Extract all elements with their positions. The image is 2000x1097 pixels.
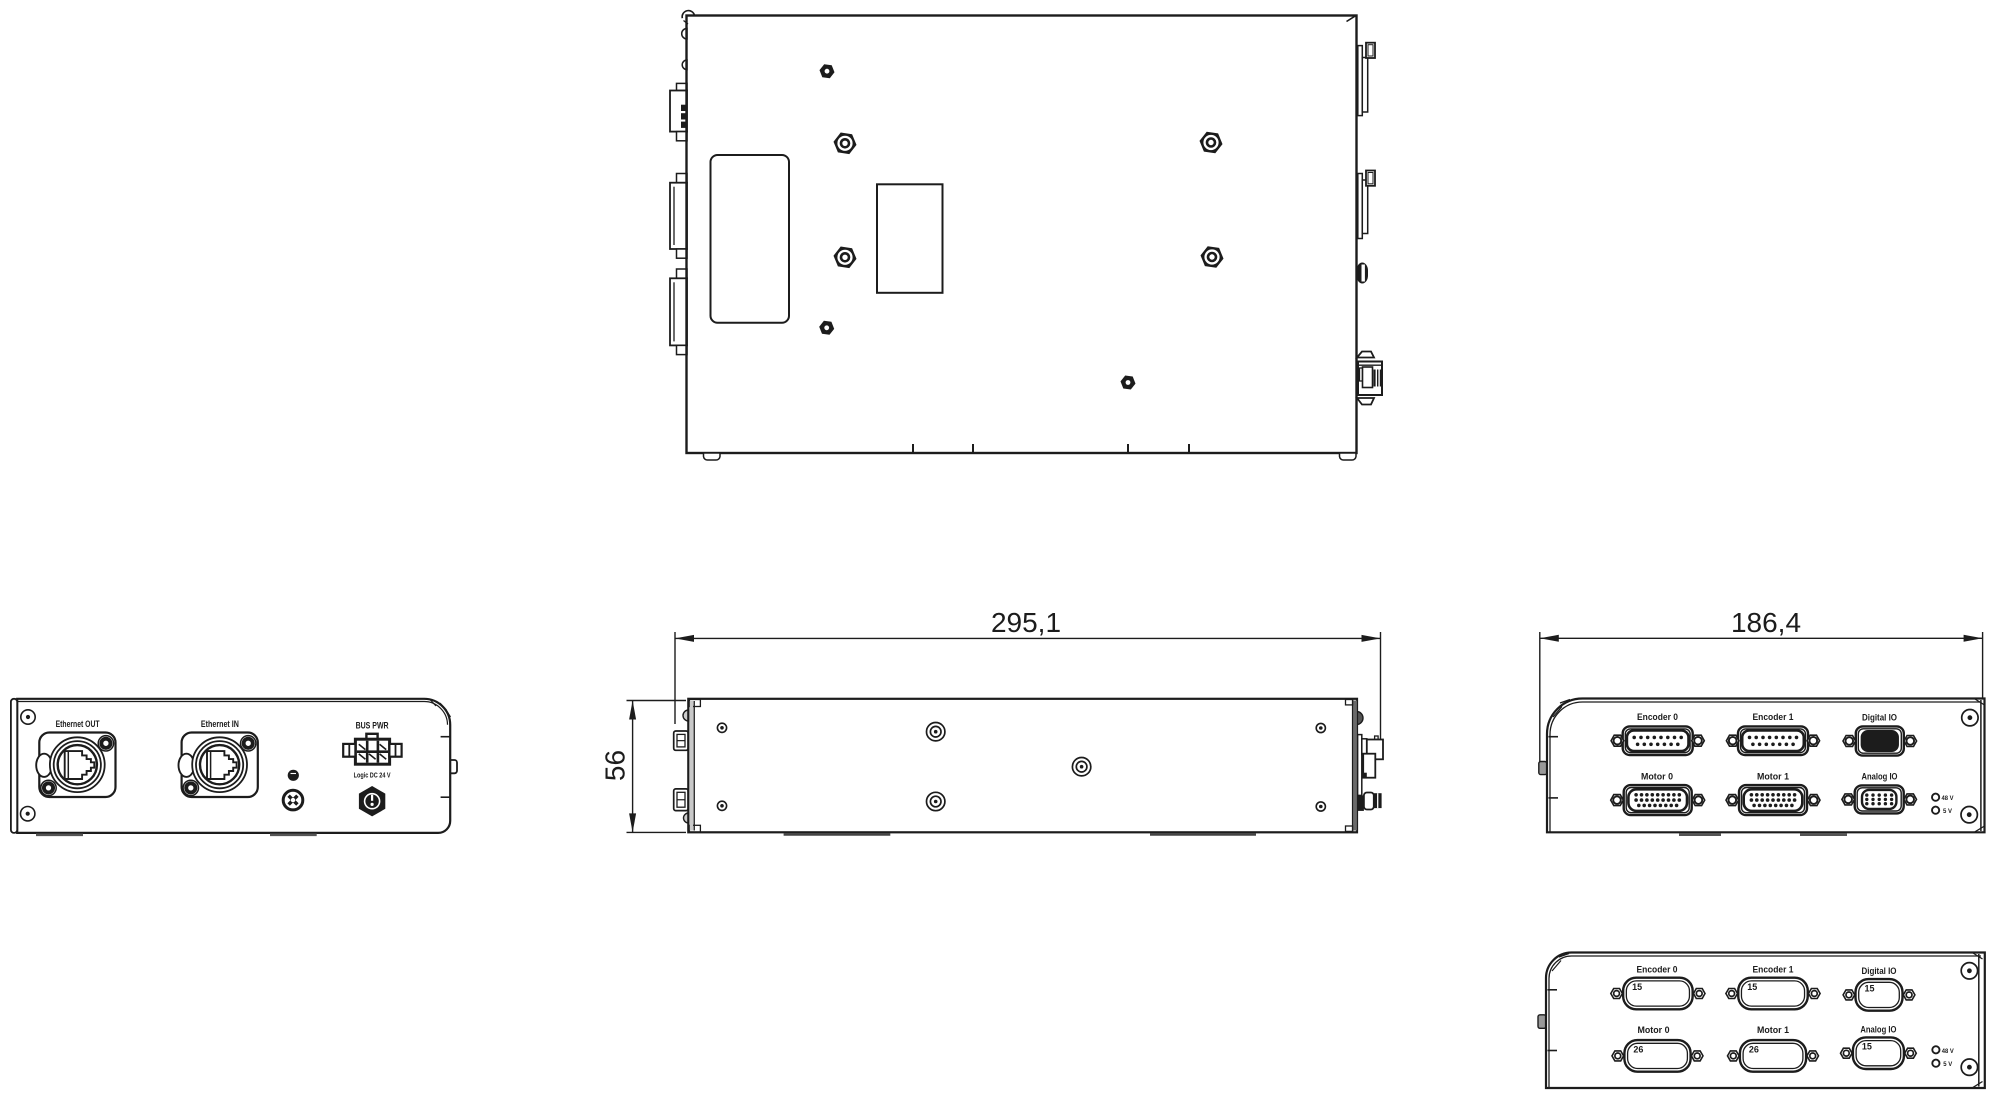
svg-text:56: 56: [600, 750, 631, 781]
svg-text:26: 26: [1749, 1044, 1759, 1054]
svg-text:5 V: 5 V: [1943, 1061, 1953, 1068]
svg-text:15: 15: [1865, 983, 1875, 993]
svg-text:Ethernet OUT: Ethernet OUT: [56, 719, 100, 730]
svg-text:Digital IO: Digital IO: [1862, 712, 1897, 723]
svg-text:Motor 1: Motor 1: [1757, 772, 1790, 783]
svg-text:Encoder 1: Encoder 1: [1753, 712, 1795, 723]
svg-text:15: 15: [1632, 982, 1642, 992]
svg-text:BUS PWR: BUS PWR: [356, 720, 389, 731]
svg-text:Motor 0: Motor 0: [1641, 772, 1673, 783]
svg-text:Encoder 1: Encoder 1: [1753, 964, 1795, 975]
svg-text:48 V: 48 V: [1942, 795, 1955, 802]
svg-text:186,4: 186,4: [1731, 607, 1801, 638]
svg-text:26: 26: [1633, 1044, 1643, 1054]
svg-text:Digital IO: Digital IO: [1862, 966, 1897, 977]
svg-text:Analog IO: Analog IO: [1860, 1024, 1896, 1035]
svg-text:15: 15: [1747, 982, 1757, 992]
svg-text:Motor 1: Motor 1: [1757, 1025, 1790, 1036]
svg-text:Logic DC 24 V: Logic DC 24 V: [354, 770, 391, 779]
svg-text:295,1: 295,1: [991, 607, 1061, 638]
svg-text:15: 15: [1862, 1042, 1872, 1052]
svg-text:Encoder 0: Encoder 0: [1637, 712, 1678, 723]
svg-text:Encoder 0: Encoder 0: [1637, 964, 1678, 975]
svg-text:48 V: 48 V: [1942, 1048, 1955, 1055]
svg-text:5 V: 5 V: [1943, 808, 1953, 815]
svg-text:Ethernet IN: Ethernet IN: [201, 719, 239, 730]
svg-text:Motor 0: Motor 0: [1638, 1025, 1670, 1036]
svg-text:Analog IO: Analog IO: [1862, 772, 1898, 783]
